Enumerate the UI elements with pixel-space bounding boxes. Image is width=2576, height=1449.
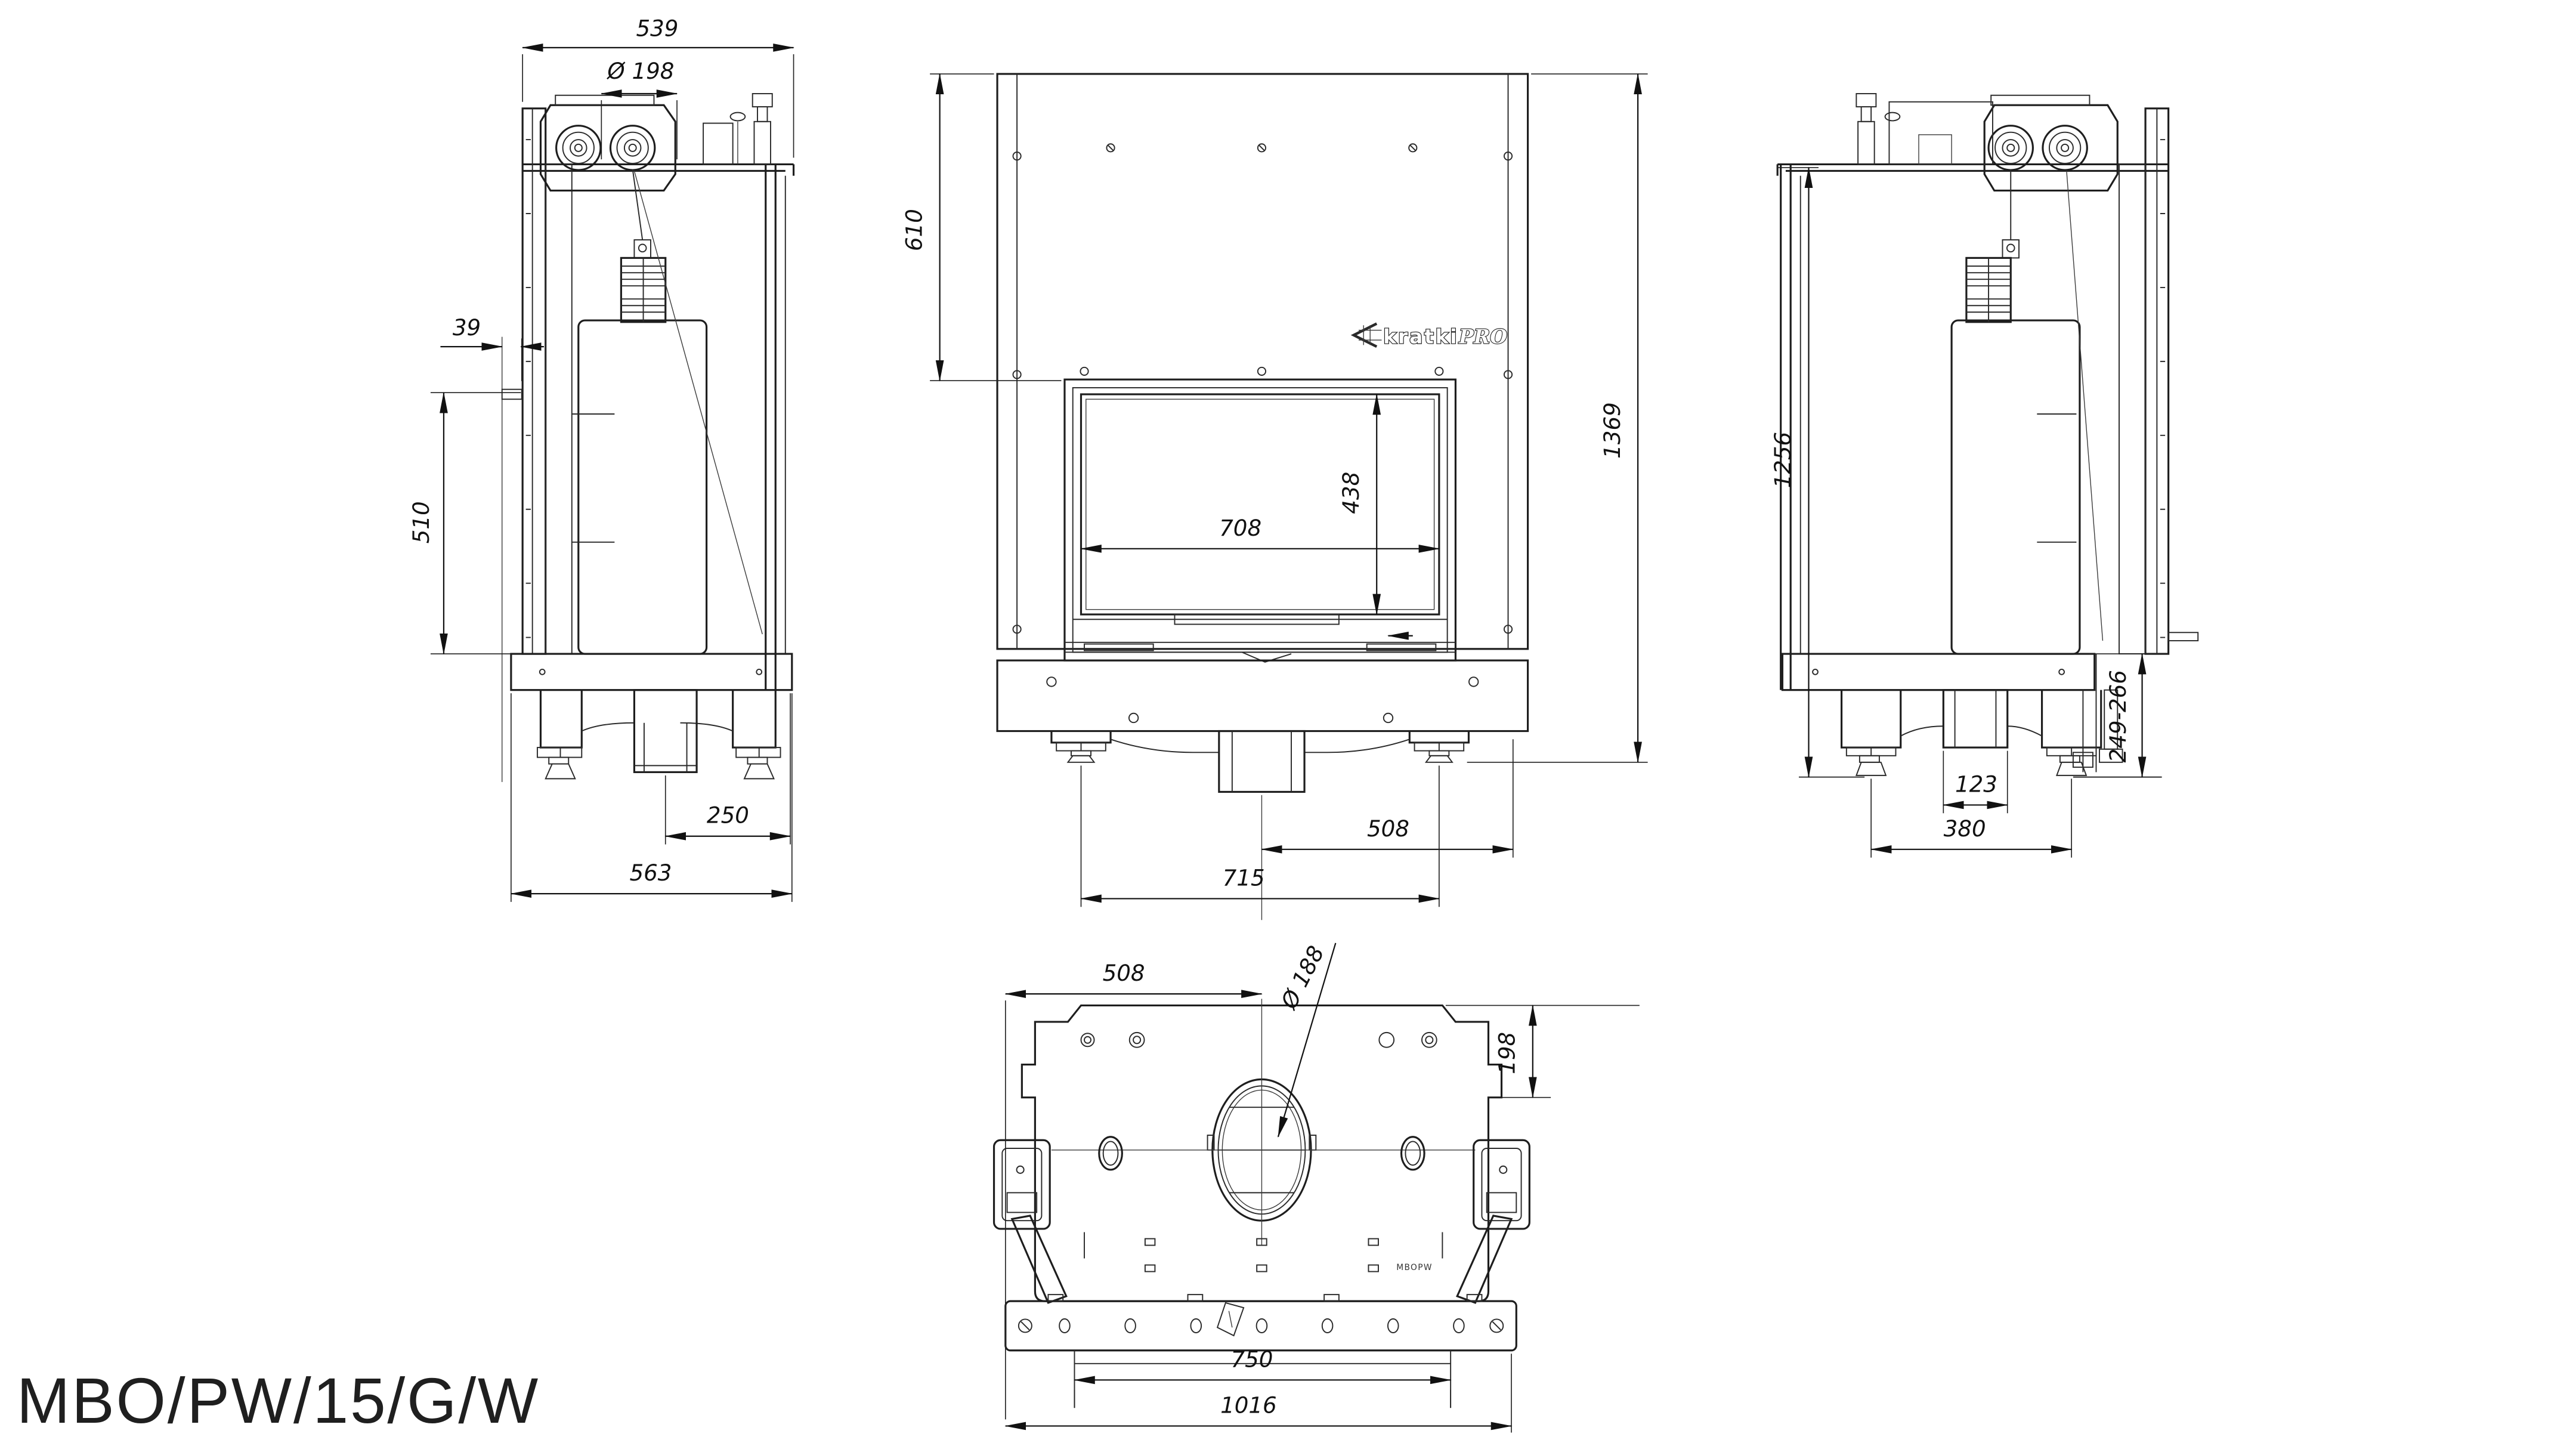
- front-foot-right: [1415, 743, 1464, 762]
- kratki-arrow-icon: [1354, 324, 1382, 347]
- pulley-front: [1989, 126, 2033, 170]
- pulley-rear: [2043, 126, 2087, 170]
- front-body: [997, 74, 1528, 649]
- counterweight: [1966, 258, 2011, 322]
- handle: [1217, 1303, 1244, 1336]
- dim-label: 539: [636, 16, 679, 42]
- kratki-logo: kratki PRO: [1354, 324, 1508, 348]
- rear-frame: [522, 109, 546, 654]
- dim-label: 750: [1230, 1346, 1273, 1372]
- junction-box: [1889, 102, 1993, 165]
- base-band: [511, 654, 792, 690]
- top-deck: [1777, 164, 2168, 175]
- door-cable: [2067, 171, 2103, 641]
- junction-box: [703, 123, 733, 165]
- counterweight: [621, 258, 665, 322]
- sensor-capsule: [731, 113, 746, 121]
- front-bar: [1006, 1294, 1516, 1351]
- technical-drawing: 539 Ø 198 39 510 250 563: [0, 0, 2576, 1449]
- foot-left: [1847, 747, 1896, 776]
- dim-label: 715: [1223, 864, 1265, 891]
- dim-label: 1016: [1220, 1392, 1277, 1418]
- dim-front-glass-height: 438: [1338, 394, 1377, 614]
- dim-label: 508: [1103, 960, 1145, 986]
- dim-label: 39: [453, 314, 481, 341]
- right-side-view: 1256 249-266 123 380: [1770, 94, 2198, 858]
- dim-label: 510: [408, 501, 434, 543]
- dim-front-top-to-glass: 610: [901, 74, 1061, 381]
- plinth-screws: [1047, 677, 1478, 722]
- dim-label: 1256: [1770, 432, 1796, 489]
- left-side-view: 539 Ø 198 39 510 250 563: [408, 16, 793, 902]
- glass: [1081, 394, 1439, 614]
- dim-front-total-height: 1369: [1467, 74, 1648, 762]
- pedestal: [1943, 690, 2007, 747]
- dim-left-total-depth: 563: [511, 693, 792, 902]
- foot-left: [537, 747, 582, 778]
- dim-left-wall-offset: 39: [440, 314, 544, 381]
- water-jacket: [1952, 320, 2080, 654]
- oval-opening-right: [1402, 1137, 1425, 1170]
- rear-stub: [2169, 632, 2198, 641]
- dim-front-glass-width: 708: [1081, 515, 1439, 549]
- sensor-capsule: [1885, 113, 1900, 121]
- plate-screws: [1081, 1033, 1437, 1048]
- legs: [540, 690, 775, 747]
- plinth: [997, 660, 1528, 731]
- plate-slots: [1084, 1232, 1442, 1271]
- wall-bracket: [502, 390, 522, 400]
- dim-left-rear-foot-offset: 250: [666, 693, 790, 844]
- dim-left-bracket-height: 510: [408, 393, 521, 654]
- pulley-plate: [1984, 105, 2117, 190]
- dim-label: 1369: [1599, 402, 1625, 459]
- dim-label: 563: [629, 860, 672, 886]
- dim-label: 250: [707, 802, 749, 829]
- dim-label: 438: [1338, 472, 1364, 514]
- dim-label: 708: [1219, 515, 1261, 541]
- dim-label: 380: [1944, 815, 1986, 842]
- legs: [1842, 690, 2101, 747]
- dim-label: Ø 198: [606, 58, 674, 84]
- front-foot-left: [1056, 743, 1106, 762]
- top-deck: [522, 164, 793, 175]
- water-jacket: [579, 320, 707, 654]
- air-valve: [1856, 94, 1876, 164]
- air-valve: [753, 94, 772, 164]
- bottom-view: MBOPW: [994, 941, 1640, 1432]
- pulley-left: [556, 126, 601, 170]
- dim-left-top-depth: 539: [522, 16, 793, 158]
- front-art: kratki PRO: [997, 74, 1528, 920]
- dim-label: 508: [1367, 815, 1409, 842]
- dim-label: 123: [1955, 771, 1997, 797]
- left-side-art: [502, 94, 794, 782]
- dim-right-body-height: 1256: [1770, 168, 1864, 777]
- dim-bottom-flue-center-offset: 198: [1446, 1005, 1640, 1097]
- axes: [1052, 999, 1476, 1245]
- front-view: kratki PRO: [901, 74, 1647, 920]
- right-side-art: [1777, 94, 2198, 777]
- base-band: [1782, 654, 2094, 690]
- logo-brand: kratki: [1383, 325, 1458, 348]
- latch-right: [1457, 1140, 1529, 1303]
- pulley-right: [610, 126, 654, 170]
- plate-etch: MBOPW: [1396, 1263, 1433, 1272]
- cable: [633, 169, 643, 240]
- dim-label: 610: [901, 209, 927, 251]
- page-title: MBO/PW/15/G/W: [17, 1365, 540, 1436]
- foot-right: [736, 747, 780, 778]
- door-cable: [634, 171, 762, 634]
- oval-opening-left: [1099, 1137, 1122, 1170]
- dim-label: 198: [1494, 1032, 1520, 1074]
- dim-label: 249-266: [2105, 670, 2131, 762]
- foot-right: [2047, 747, 2096, 776]
- latch-left: [994, 1140, 1066, 1303]
- logo-suffix: PRO: [1458, 325, 1507, 348]
- dim-front-center-to-edge: 508: [1261, 739, 1513, 857]
- dim-right-duct-width: 123: [1943, 751, 2007, 814]
- dim-label: Ø 188: [1275, 941, 1329, 1014]
- screws: [1013, 144, 1512, 633]
